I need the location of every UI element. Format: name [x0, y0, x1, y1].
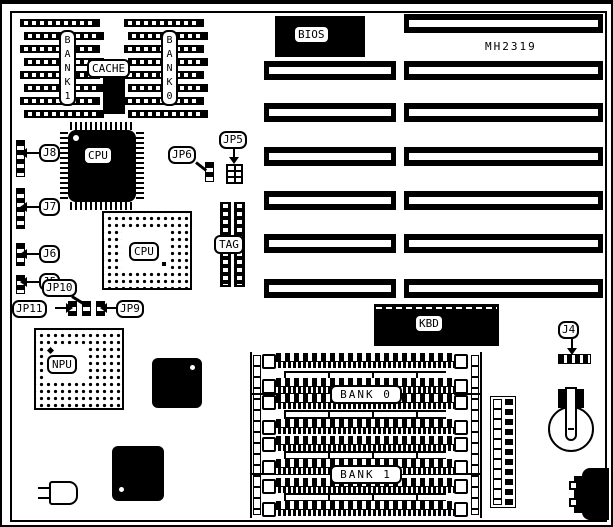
- cpu-pins-bottom: [70, 202, 134, 210]
- simm-area: [250, 352, 482, 518]
- cpu-pins-left: [60, 132, 68, 200]
- simm-bank0-label: BANK 0: [330, 385, 402, 404]
- isa-slot: [264, 103, 396, 122]
- simm-socket-row: [276, 353, 454, 368]
- jp9-lead: [106, 307, 116, 309]
- power-connector-pins: [505, 399, 513, 505]
- j7-callout: J7: [39, 198, 60, 216]
- simm-socket-row: [276, 501, 454, 516]
- cpu-body: [68, 130, 136, 202]
- asic-chip-2-pin1-dot: [119, 487, 124, 492]
- din-connector-tab: [569, 481, 578, 490]
- jp5-pin: [236, 166, 242, 170]
- jp9-callout: JP9: [116, 300, 144, 318]
- jp5-pin: [228, 178, 234, 182]
- asic-chip-2: [112, 446, 164, 501]
- jp6-header: [205, 162, 214, 182]
- tag-label: TAG: [214, 235, 244, 254]
- cache-chip-row: [20, 19, 100, 27]
- motherboard-diagram: BANK1 BANK0 CACHE BIOS MH2319 CPU CPU TA…: [0, 0, 613, 527]
- cache-chip-row: [128, 110, 208, 118]
- jp10-callout: JP10: [42, 279, 77, 297]
- j8-header: [16, 140, 25, 177]
- j4-lead: [571, 339, 573, 349]
- isa-slot: [264, 234, 396, 253]
- cpu-label: CPU: [85, 148, 111, 163]
- asic-chip-1-pin1-dot: [190, 365, 195, 370]
- jp11-lead: [55, 307, 67, 309]
- npu-label: NPU: [47, 355, 77, 374]
- isa-slot: [404, 234, 603, 253]
- jp5-pin: [236, 178, 242, 182]
- cpu-pins-top: [70, 122, 134, 130]
- jp5-lead: [233, 148, 235, 158]
- cpu-socket-pin1-dot: [162, 262, 166, 266]
- model-number: MH2319: [485, 40, 537, 53]
- jp5-pin: [228, 172, 234, 176]
- isa-slot: [264, 279, 396, 298]
- crystal-oscillator: [49, 481, 78, 505]
- j7-lead: [26, 206, 39, 208]
- simm-gap-row: [284, 410, 446, 419]
- j8-lead: [26, 152, 39, 154]
- cpu-pins-right: [136, 132, 144, 200]
- asic-chip-1: [152, 358, 202, 408]
- crystal-lead: [38, 497, 49, 499]
- simm-edge-right: [471, 355, 479, 515]
- isa-slot: [404, 279, 603, 298]
- isa-slot: [404, 103, 603, 122]
- cache-label: CACHE: [87, 59, 130, 78]
- j5-lead: [26, 281, 39, 283]
- j8-callout: J8: [39, 144, 60, 162]
- cache-chip-row: [24, 110, 104, 118]
- din-connector-tab: [569, 498, 578, 507]
- isa-slot: [264, 61, 396, 80]
- isa-slot: [404, 147, 603, 166]
- cache-bank1-label: BANK1: [59, 30, 76, 106]
- jp11-callout: JP11: [12, 300, 47, 318]
- simm-bank1-label: BANK 1: [330, 465, 402, 484]
- jp5-pin: [236, 172, 242, 176]
- power-connector-holes: [493, 399, 502, 505]
- cache-bank0-label: BANK0: [161, 30, 178, 106]
- battery-capsule: [565, 387, 577, 441]
- isa-slot: [264, 191, 396, 210]
- isa-slot: [404, 14, 603, 33]
- cpu-pin1-dot: [73, 135, 79, 141]
- din-connector: [582, 468, 609, 520]
- isa-slot: [264, 147, 396, 166]
- simm-socket-row: [276, 419, 454, 434]
- simm-socket-row: [276, 436, 454, 451]
- j4-header: [558, 354, 591, 364]
- simm-edge-left: [253, 355, 261, 515]
- jp5-pin: [228, 166, 234, 170]
- kbd-dashed-line: [376, 307, 497, 309]
- kbd-label: KBD: [416, 316, 442, 331]
- cpu-socket-label: CPU: [129, 242, 159, 261]
- bios-label: BIOS: [295, 27, 328, 42]
- jp5-header: [226, 164, 243, 184]
- j6-callout: J6: [39, 245, 60, 263]
- j6-lead: [26, 253, 39, 255]
- cache-chip-row: [124, 19, 204, 27]
- isa-slot: [404, 191, 603, 210]
- jp5-callout: JP5: [219, 131, 247, 149]
- cpu-qfp: CPU: [60, 122, 144, 210]
- power-connector: [490, 396, 516, 508]
- jp6-callout: JP6: [168, 146, 196, 164]
- crystal-lead: [38, 487, 49, 489]
- isa-slot: [404, 61, 603, 80]
- j4-callout: J4: [558, 321, 579, 339]
